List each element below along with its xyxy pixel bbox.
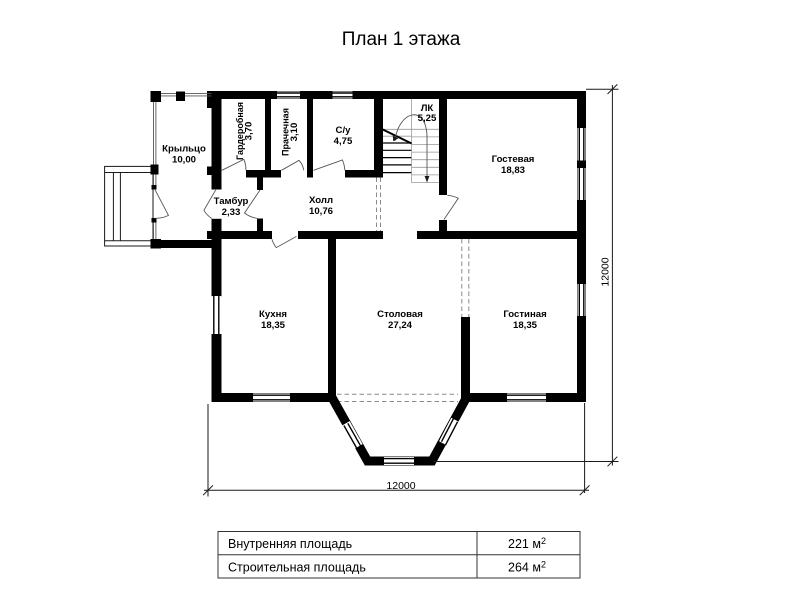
svg-text:Внутренняя площадь: Внутренняя площадь <box>228 537 352 551</box>
svg-text:221 м2: 221 м2 <box>508 536 546 551</box>
svg-text:4,75: 4,75 <box>334 136 353 147</box>
svg-text:10,76: 10,76 <box>309 206 333 217</box>
svg-text:18,35: 18,35 <box>261 320 286 331</box>
svg-text:Гостиная: Гостиная <box>503 309 546 320</box>
svg-text:Столовая: Столовая <box>377 309 423 320</box>
svg-text:264 м2: 264 м2 <box>508 560 546 575</box>
svg-text:27,24: 27,24 <box>388 320 413 331</box>
svg-text:3,10: 3,10 <box>289 123 300 142</box>
svg-text:10,00: 10,00 <box>172 155 196 166</box>
svg-text:План 1 этажа: План 1 этажа <box>342 29 461 50</box>
svg-text:Тамбур: Тамбур <box>214 196 249 207</box>
svg-text:С/у: С/у <box>336 125 352 136</box>
svg-text:18,83: 18,83 <box>501 165 525 176</box>
svg-text:2,33: 2,33 <box>222 207 241 218</box>
svg-text:5,25: 5,25 <box>418 113 437 124</box>
svg-text:3,70: 3,70 <box>244 122 255 141</box>
svg-text:Строительная площадь: Строительная площадь <box>228 561 366 575</box>
svg-text:Крыльцо: Крыльцо <box>162 144 206 155</box>
svg-text:Гостевая: Гостевая <box>492 154 535 165</box>
svg-text:Холл: Холл <box>309 195 333 206</box>
svg-text:12000: 12000 <box>386 480 415 492</box>
svg-text:18,35: 18,35 <box>513 320 538 331</box>
svg-text:12000: 12000 <box>600 257 612 286</box>
svg-text:Кухня: Кухня <box>259 309 287 320</box>
